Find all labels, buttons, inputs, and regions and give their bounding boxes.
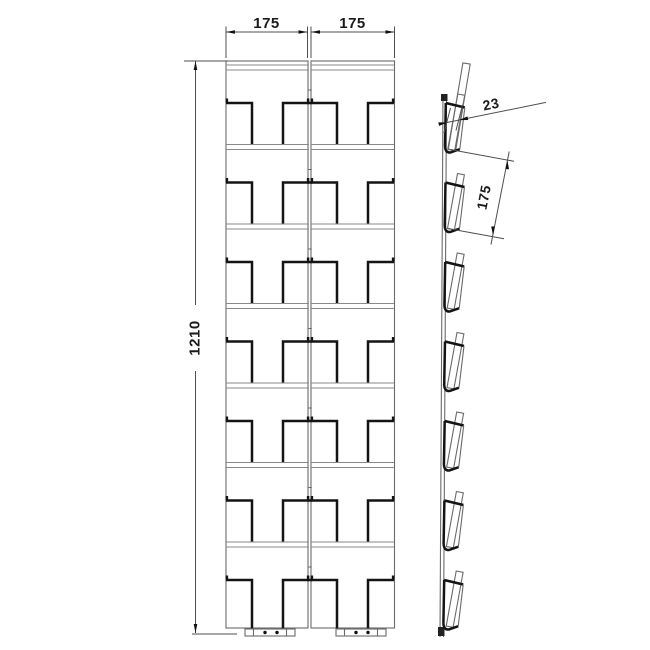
dim-width-right-label: 175 <box>339 15 366 32</box>
side-dimensions: 23 175 <box>438 95 546 245</box>
dim-height-label: 1210 <box>186 320 203 355</box>
mount-rail-right <box>336 629 386 636</box>
front-right-column <box>311 61 395 628</box>
front-left-column <box>226 61 308 628</box>
front-dimensions: 175 175 1210 <box>184 15 395 634</box>
side-view <box>438 63 470 637</box>
dim-width-left-label: 175 <box>253 15 280 32</box>
front-view <box>226 61 395 636</box>
dim-depth-label: 23 <box>481 95 500 114</box>
panel-top-cap <box>441 94 448 101</box>
mount-rail-left <box>245 629 295 636</box>
technical-drawing: 175 175 1210 23 <box>0 0 650 650</box>
dim-pitch-label: 175 <box>474 184 494 211</box>
